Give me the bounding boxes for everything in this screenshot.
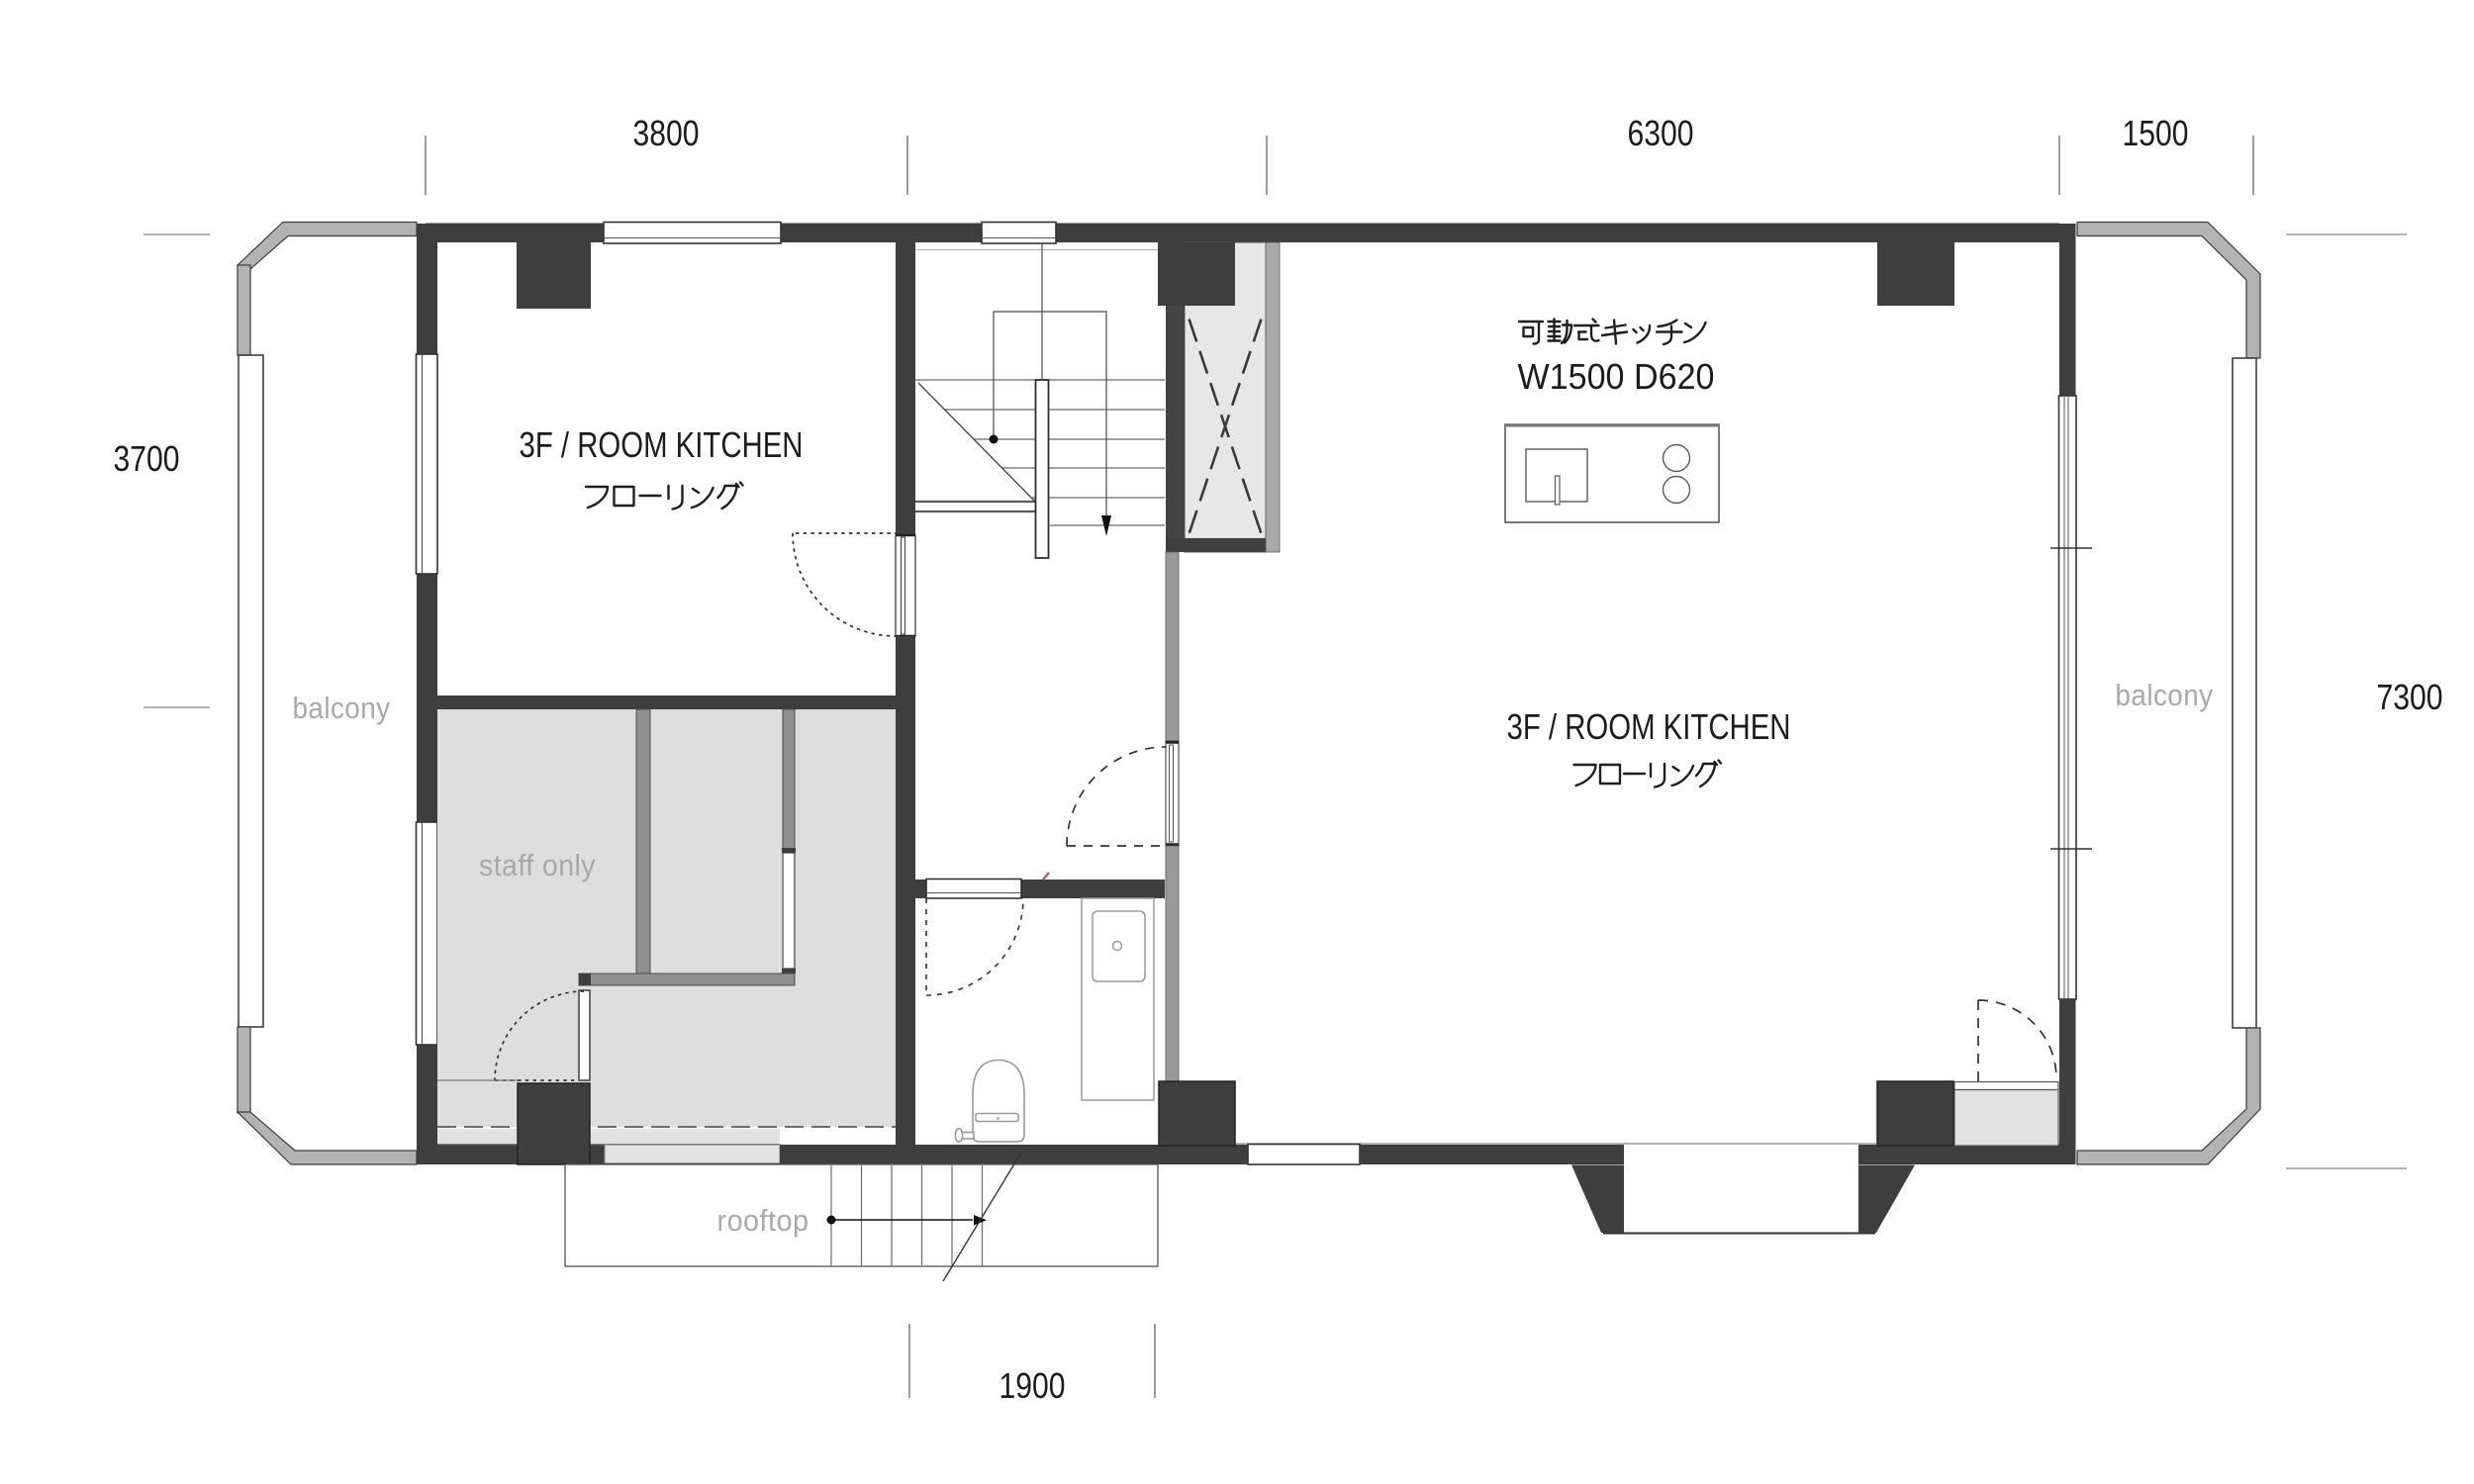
svg-text:rooftop: rooftop <box>717 1203 809 1238</box>
svg-text:6300: 6300 <box>1628 113 1694 153</box>
svg-text:1500: 1500 <box>2123 113 2189 153</box>
svg-text:1900: 1900 <box>999 1365 1066 1406</box>
svg-text:staff only: staff only <box>479 848 596 882</box>
svg-text:balcony: balcony <box>2116 678 2214 712</box>
svg-text:3700: 3700 <box>114 438 180 479</box>
svg-text:3F / ROOM KITCHEN: 3F / ROOM KITCHEN <box>520 424 804 465</box>
svg-text:balcony: balcony <box>293 691 391 725</box>
svg-text:3F / ROOM KITCHEN: 3F / ROOM KITCHEN <box>1507 706 1791 747</box>
svg-text:W1500 D620: W1500 D620 <box>1518 356 1715 397</box>
svg-text:3800: 3800 <box>633 113 700 153</box>
svg-text:7300: 7300 <box>2377 677 2443 717</box>
